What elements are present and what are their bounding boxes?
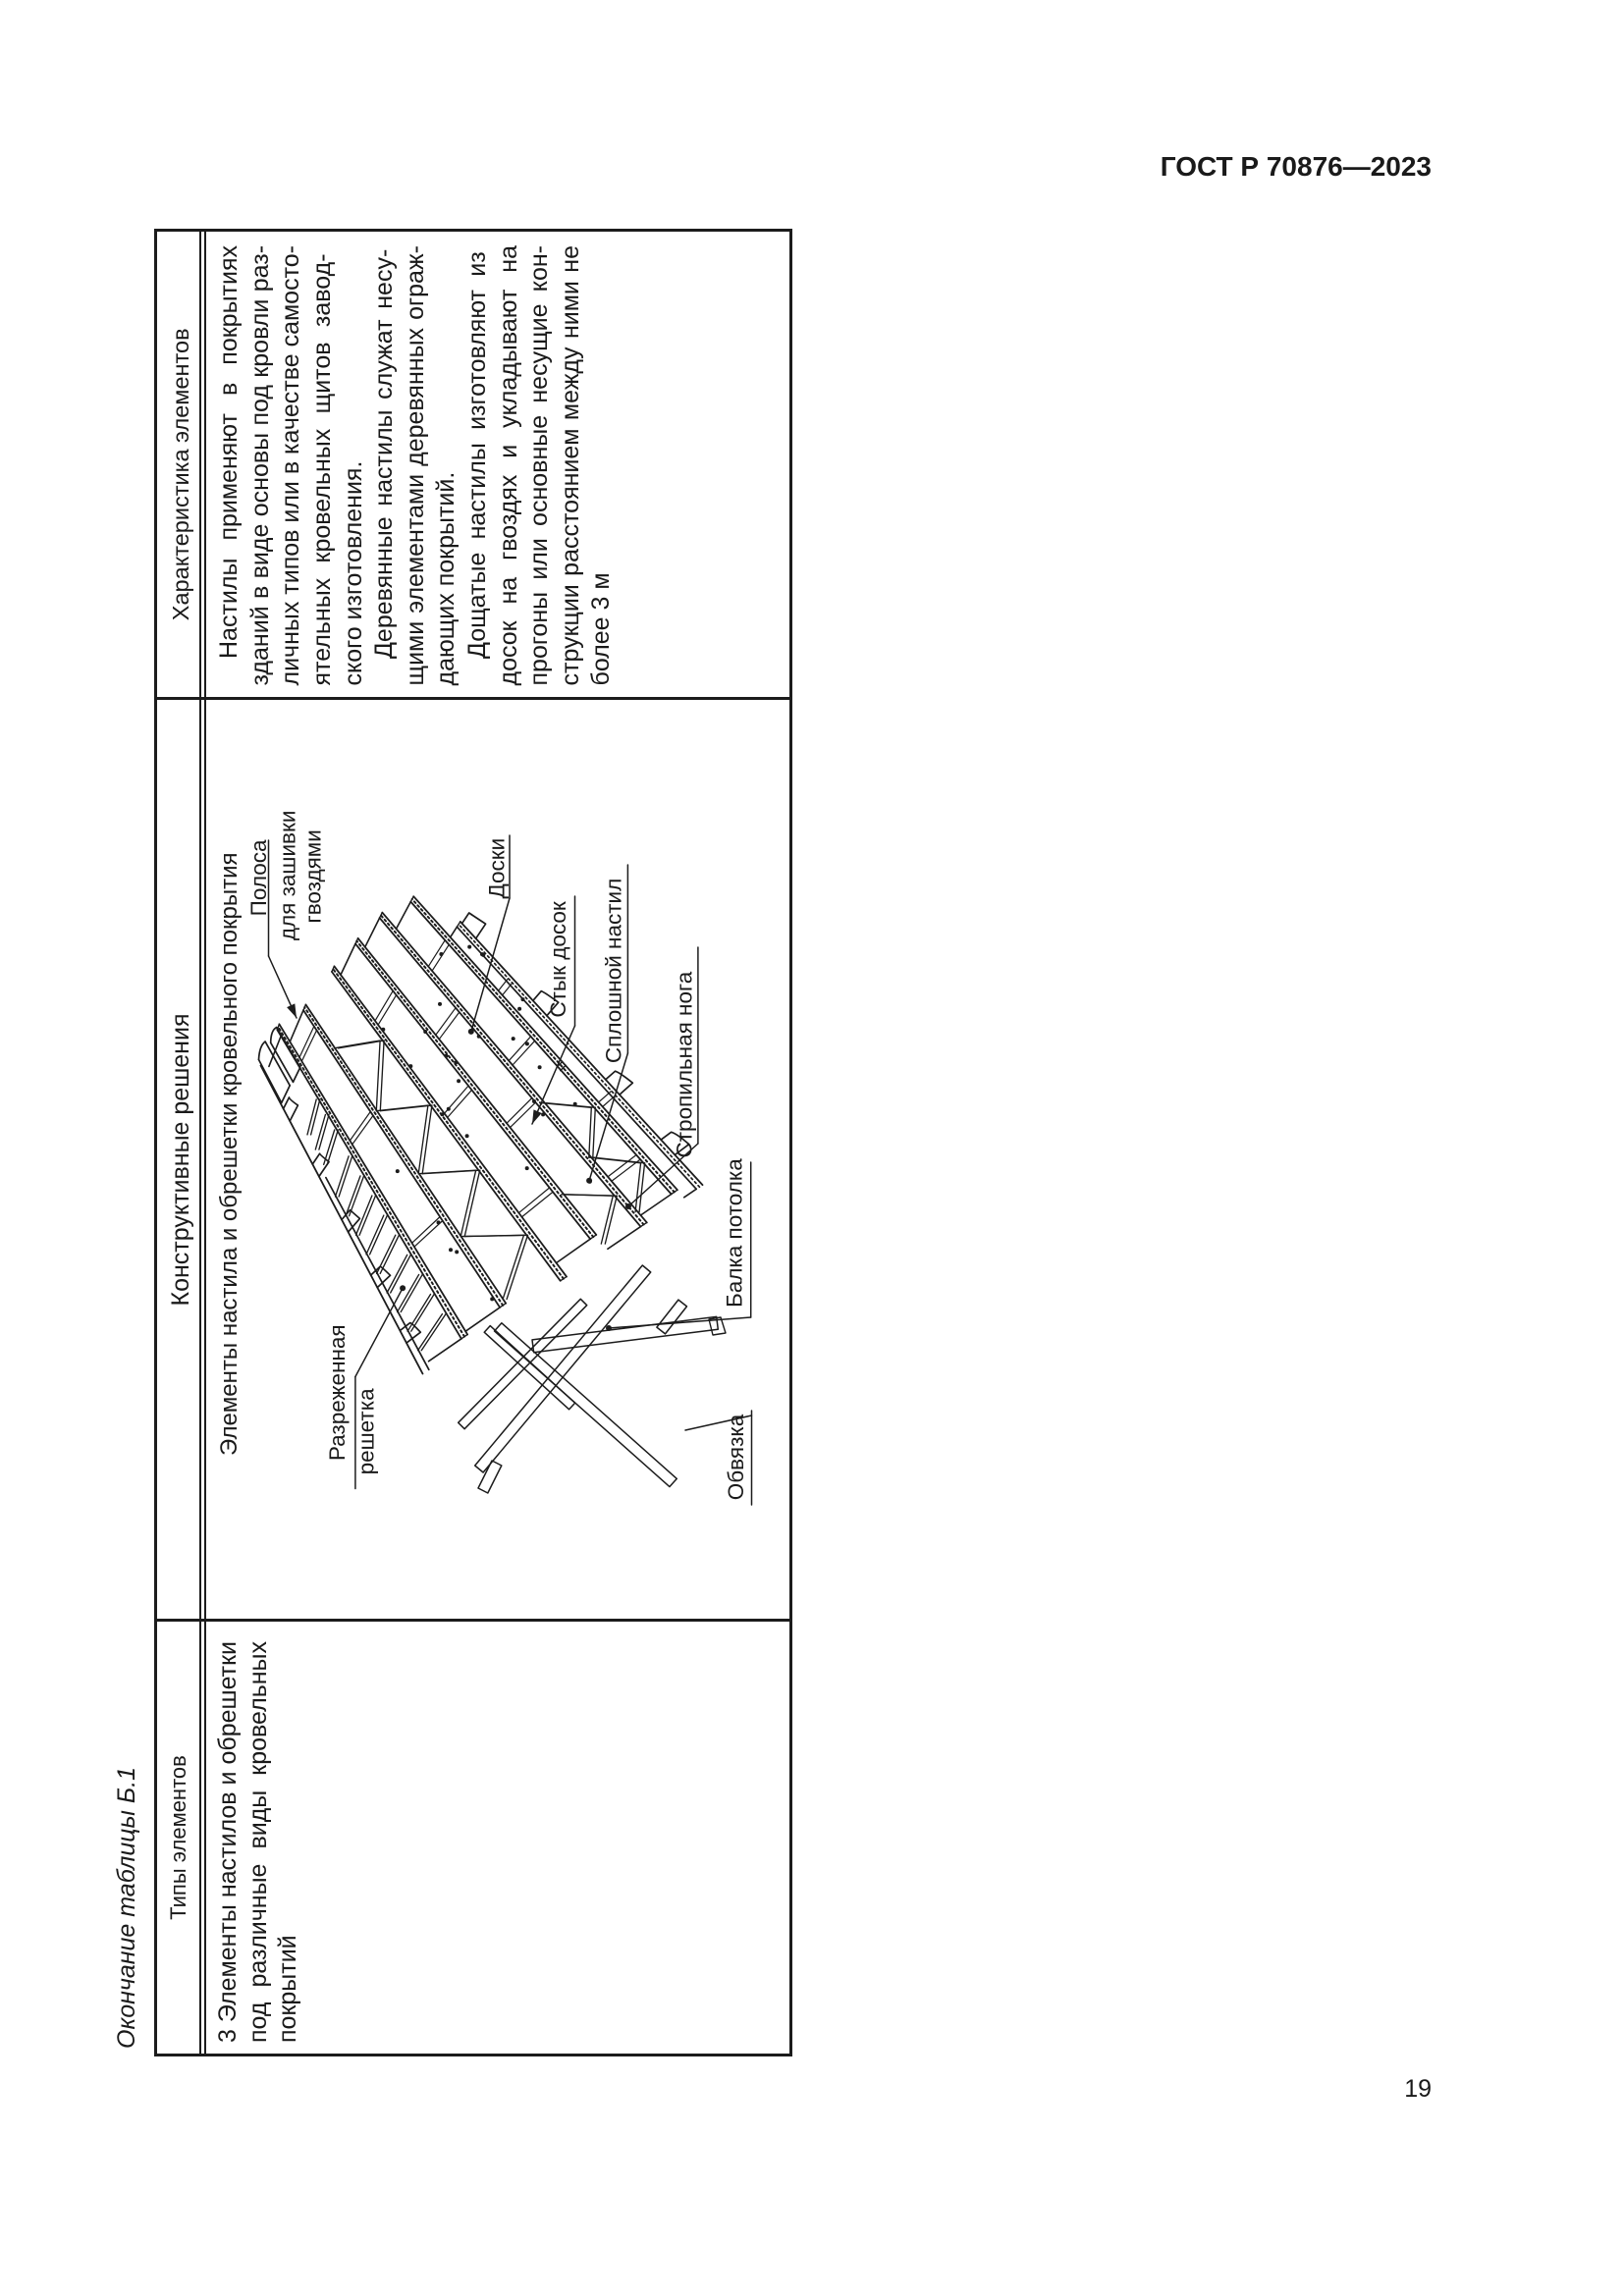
svg-text:для зашивки: для зашивки <box>275 811 299 941</box>
svg-text:Стык досок: Стык досок <box>546 902 570 1018</box>
svg-text:Разреженная: Разреженная <box>325 1325 350 1462</box>
svg-text:Обвязка: Обвязка <box>724 1415 748 1501</box>
svg-text:Полоса: Полоса <box>246 839 271 916</box>
svg-text:решетка: решетка <box>353 1388 378 1474</box>
svg-text:Доски: Доски <box>484 838 509 899</box>
svg-text:гвоздями: гвоздями <box>300 830 325 924</box>
svg-text:Сплошной настил: Сплошной настил <box>601 879 625 1063</box>
svg-text:Балка потолка: Балка потолка <box>722 1158 746 1308</box>
svg-text:Стропильная нога: Стропильная нога <box>672 972 696 1158</box>
